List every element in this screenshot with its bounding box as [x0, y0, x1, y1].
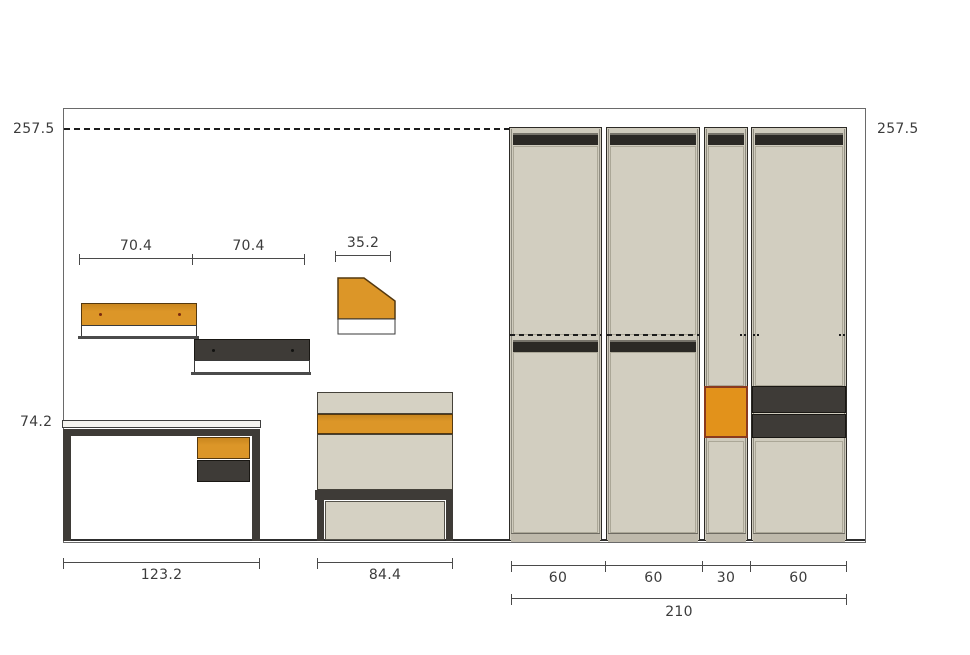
wardrobe-section-1 [509, 127, 602, 541]
shelf-bottom-lip [78, 336, 199, 339]
dimension-line-wardrobe-total [511, 598, 847, 599]
dim-label-section-2: 60 [605, 570, 702, 586]
door-panel-upper [513, 146, 598, 335]
hanging-rail-top [610, 133, 696, 145]
base-strip [753, 533, 845, 542]
shelf-bottom-lip [191, 372, 311, 375]
hanging-rail-middle [513, 340, 598, 352]
dimension-tick [304, 254, 305, 265]
shelf-pin-mark [753, 334, 759, 336]
dim-label-shelf-right: 70.4 [192, 238, 305, 254]
dim-label-shelf-left: 70.4 [79, 238, 193, 254]
dresser-base-leg-right [446, 490, 453, 541]
wardrobe-section-2 [606, 127, 700, 541]
wardrobe-section-3 [704, 127, 748, 541]
dimension-line-corner-shelf [335, 255, 391, 256]
door-panel-lower [755, 441, 843, 533]
dresser-drawer-bottom [317, 434, 453, 490]
screw-dot [291, 349, 294, 352]
base-strip [706, 533, 746, 542]
dresser-drawer-top [317, 392, 453, 414]
dim-label-section-3: 30 [702, 570, 750, 586]
furniture-elevation-drawing: 257.5 257.5 [0, 0, 970, 655]
wall-height-label-right: 257.5 [877, 121, 919, 137]
ceiling-height-dashline [64, 128, 509, 130]
mid-rail-dashline [607, 334, 699, 336]
dimension-line-dresser [317, 562, 453, 563]
dim-label-section-4: 60 [750, 570, 847, 586]
dresser-base-rail [315, 490, 453, 500]
door-panel-lower [513, 352, 598, 533]
door-panel-lower [610, 352, 696, 533]
screw-dot [178, 313, 181, 316]
desk-leg-right [252, 429, 260, 541]
hanging-rail-top [708, 133, 744, 145]
wardrobe-section-4 [751, 127, 847, 541]
desk-leg-left [63, 429, 71, 541]
base-strip [608, 533, 698, 542]
hanging-rail-top [513, 133, 598, 145]
base-strip [511, 533, 600, 542]
shelf-pin-mark [839, 334, 845, 336]
dresser-base-leg-left [317, 490, 324, 541]
desk-drawer-dark [197, 460, 250, 482]
hanging-rail-middle [610, 340, 696, 352]
screw-dot [212, 349, 215, 352]
internal-drawer-2 [752, 414, 846, 438]
dimension-tick [192, 254, 193, 265]
desk-top [62, 420, 261, 428]
dimension-tick [79, 254, 80, 265]
door-panel-upper [610, 146, 696, 335]
mid-rail-dashline [510, 334, 601, 336]
shelf-pin-mark [740, 334, 746, 336]
shelf-front-panel [81, 303, 197, 326]
dim-label-desk-height: 74.2 [20, 414, 52, 430]
dimension-line-shelves [79, 258, 305, 259]
dimension-line-desk [63, 562, 260, 563]
dimension-line-wardrobe-sections [511, 565, 847, 566]
internal-drawer-1 [752, 386, 846, 413]
dim-label-section-1: 60 [511, 570, 605, 586]
shelf-front-panel [194, 339, 310, 361]
dim-label-desk-width: 123.2 [63, 567, 260, 583]
door-panel-lower [708, 441, 744, 533]
door-panel-upper [755, 146, 843, 386]
dim-label-corner-shelf: 35.2 [333, 235, 393, 251]
corner-shelf [337, 276, 397, 337]
corner-shelf-body [338, 278, 395, 319]
dimension-tick [390, 251, 391, 262]
dresser-drawer-orange [317, 414, 453, 434]
wall-height-label-left: 257.5 [13, 121, 55, 137]
door-panel-upper [708, 146, 744, 386]
dimension-tick [335, 251, 336, 262]
dim-label-dresser-width: 84.4 [317, 567, 453, 583]
pullout-box-orange [704, 386, 748, 438]
dresser-base-panel [325, 501, 445, 540]
screw-dot [99, 313, 102, 316]
hanging-rail-top [755, 133, 843, 145]
desk-drawer-orange [197, 437, 250, 459]
dim-label-wardrobe-total: 210 [511, 604, 847, 620]
desk-apron [70, 429, 253, 436]
corner-shelf-underside [338, 319, 395, 334]
